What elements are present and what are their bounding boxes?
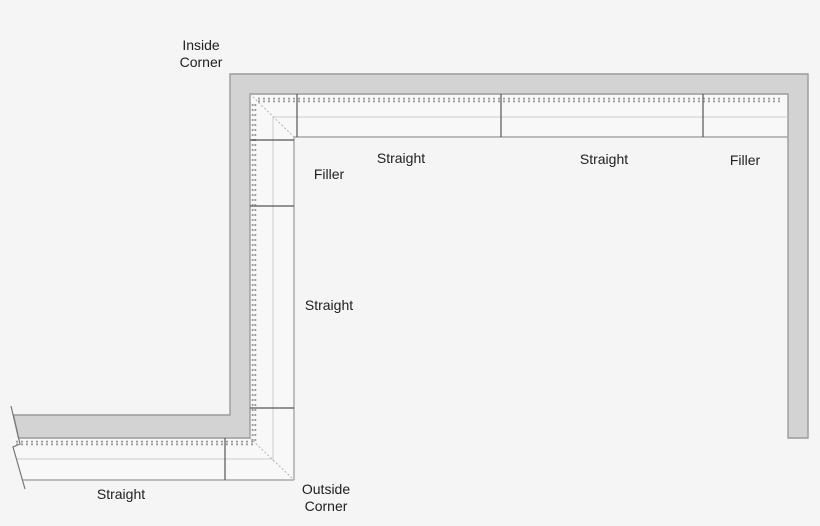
trim-layout-diagram: Inside Corner Straight Straight Filler F… bbox=[0, 0, 820, 526]
label-left-filler: Filler bbox=[314, 166, 344, 183]
label-bottom-straight: Straight bbox=[97, 486, 145, 503]
label-inside-corner-line1: Inside bbox=[180, 37, 223, 54]
diagram-canvas bbox=[0, 0, 820, 526]
label-left-straight: Straight bbox=[305, 297, 353, 314]
label-outside-corner-line2: Corner bbox=[302, 498, 350, 515]
label-inside-corner-line2: Corner bbox=[180, 54, 223, 71]
label-top-filler: Filler bbox=[730, 152, 760, 169]
label-outside-corner: Outside Corner bbox=[302, 481, 350, 515]
label-inside-corner: Inside Corner bbox=[180, 37, 223, 71]
label-top-straight-1: Straight bbox=[377, 150, 425, 167]
label-top-straight-2: Straight bbox=[580, 151, 628, 168]
label-outside-corner-line1: Outside bbox=[302, 481, 350, 498]
